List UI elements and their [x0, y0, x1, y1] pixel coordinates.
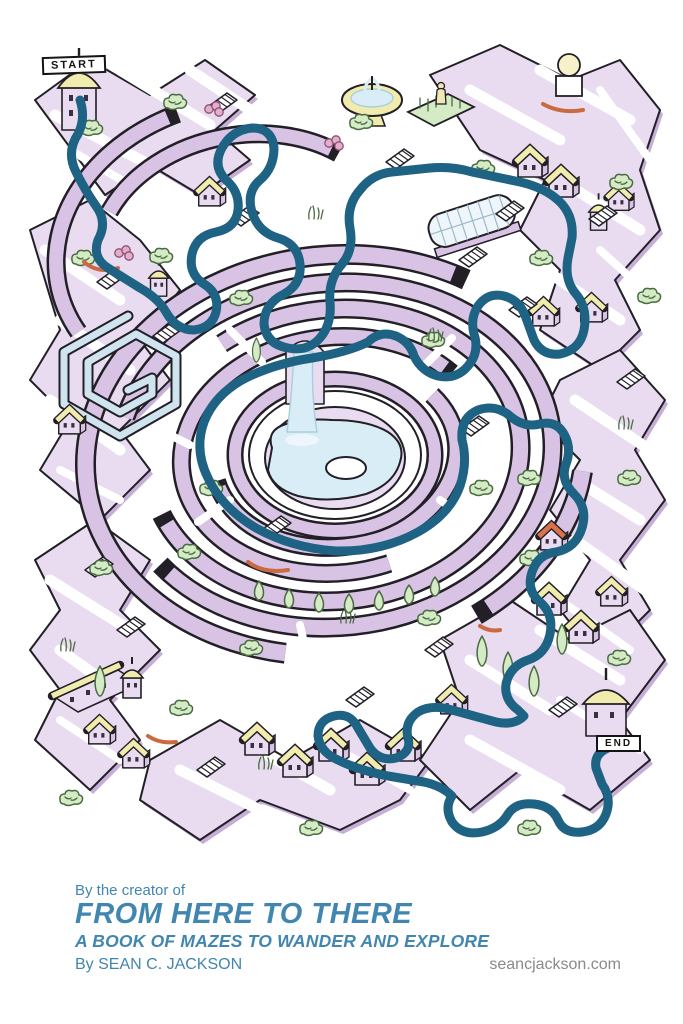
- grass-tuft: [309, 206, 323, 219]
- house: [121, 743, 150, 768]
- maze-illustration: [0, 0, 683, 880]
- start-sign: START: [42, 55, 106, 75]
- bush: [150, 248, 173, 263]
- house: [243, 727, 275, 755]
- tree: [252, 338, 260, 362]
- book-title: FROM HERE TO THERE: [75, 900, 621, 930]
- bush: [60, 790, 83, 805]
- bush: [470, 480, 493, 495]
- stairs: [459, 247, 487, 267]
- pond-island: [326, 457, 366, 479]
- bush: [518, 820, 541, 835]
- greenhouse: [425, 191, 521, 257]
- website-url: seancjackson.com: [489, 956, 621, 974]
- stairs: [346, 687, 374, 707]
- statue: [436, 83, 446, 105]
- red-bridge: [148, 736, 176, 742]
- book-subtitle: A BOOK OF MAZES TO WANDER AND EXPLORE: [75, 931, 621, 952]
- end-sign: END: [596, 735, 641, 752]
- maze-poster: START END By the creator of FROM HERE TO…: [0, 0, 683, 1024]
- footer: By the creator of FROM HERE TO THERE A B…: [75, 882, 621, 974]
- bush: [170, 700, 193, 715]
- author-byline: By SEAN C. JACKSON: [75, 956, 242, 974]
- footer-intro: By the creator of: [75, 882, 621, 899]
